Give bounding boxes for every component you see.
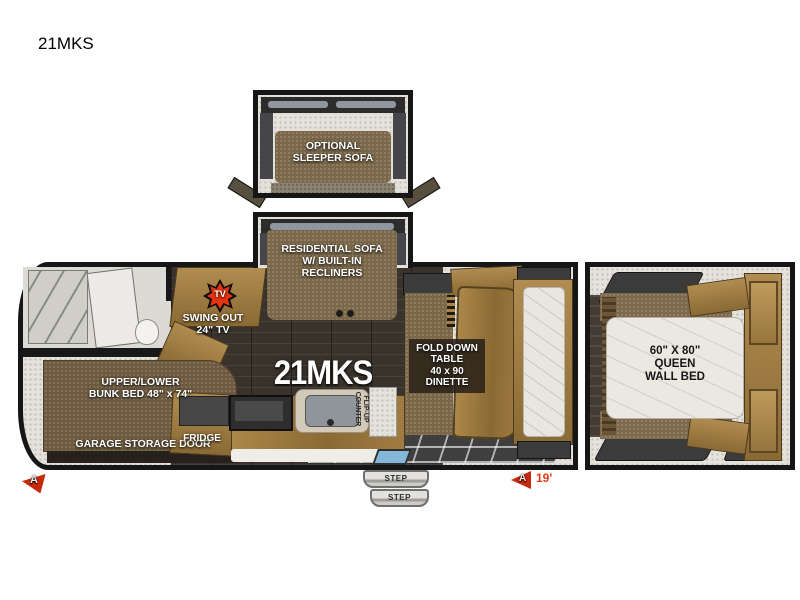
swing-tv-label: SWING OUT 24" TV [161, 313, 265, 337]
residential-headrest [270, 223, 394, 230]
queen-bed-slide-section: 60" X 80" QUEEN WALL BED [585, 262, 795, 470]
front-marker-label: A [30, 474, 38, 486]
dinette-label: FOLD DOWN TABLE 40 x 90 DINETTE [409, 339, 485, 393]
flip-counter-label: FLIP-UP COUNTER [349, 381, 369, 437]
sleeper-sofa-label: OPTIONAL SLEEPER SOFA [266, 141, 400, 165]
sleeper-headrest-left [268, 101, 328, 108]
wardrobe-closet [28, 270, 88, 344]
sink-faucet [327, 419, 334, 426]
murphy-mattress-edge [523, 287, 565, 437]
rear-marker-label: A [519, 473, 526, 484]
length-label: 19' [536, 471, 552, 485]
residential-sofa-label: RESIDENTIAL SOFA W/ BUILT-IN RECLINERS [256, 244, 408, 280]
entry-step-bottom: STEP [370, 489, 429, 507]
bed-cabinet-door-top [686, 277, 750, 317]
entry-step-top: STEP [363, 470, 429, 488]
bunk-bed-label: UPPER/LOWER BUNK BED 48" x 74" [48, 377, 233, 401]
queen-bed-label: 60" X 80" QUEEN WALL BED [620, 345, 730, 384]
flip-counter [369, 387, 397, 437]
floorplan-canvas: 21MKS TV SWING OUT 24" TV 21MKS UPPER/LO… [0, 0, 800, 600]
entry-door-glass [372, 449, 412, 465]
wardrobe-door-top [749, 281, 778, 345]
cooktop-surface [235, 401, 283, 421]
table-hinges [447, 295, 455, 327]
wardrobe-door-bottom [749, 389, 778, 453]
murphy-bottom-cap [517, 441, 571, 459]
sleeper-sofa-slideout: OPTIONAL SLEEPER SOFA [253, 90, 413, 198]
sleeper-skirt [271, 183, 395, 193]
page-title: 21MKS [38, 34, 94, 54]
toilet [135, 319, 159, 345]
interior-wall [21, 348, 173, 357]
kitchen-mat [231, 449, 391, 462]
recliner-cup-right [347, 310, 354, 317]
floor-model-label: 21MKS [248, 353, 398, 393]
tv-badge-label: TV [203, 289, 237, 299]
sleeper-headrest-right [336, 101, 396, 108]
fridge-label: FRIDGE [167, 433, 237, 444]
bathroom-door [87, 267, 142, 348]
recliner-cup-left [336, 310, 343, 317]
